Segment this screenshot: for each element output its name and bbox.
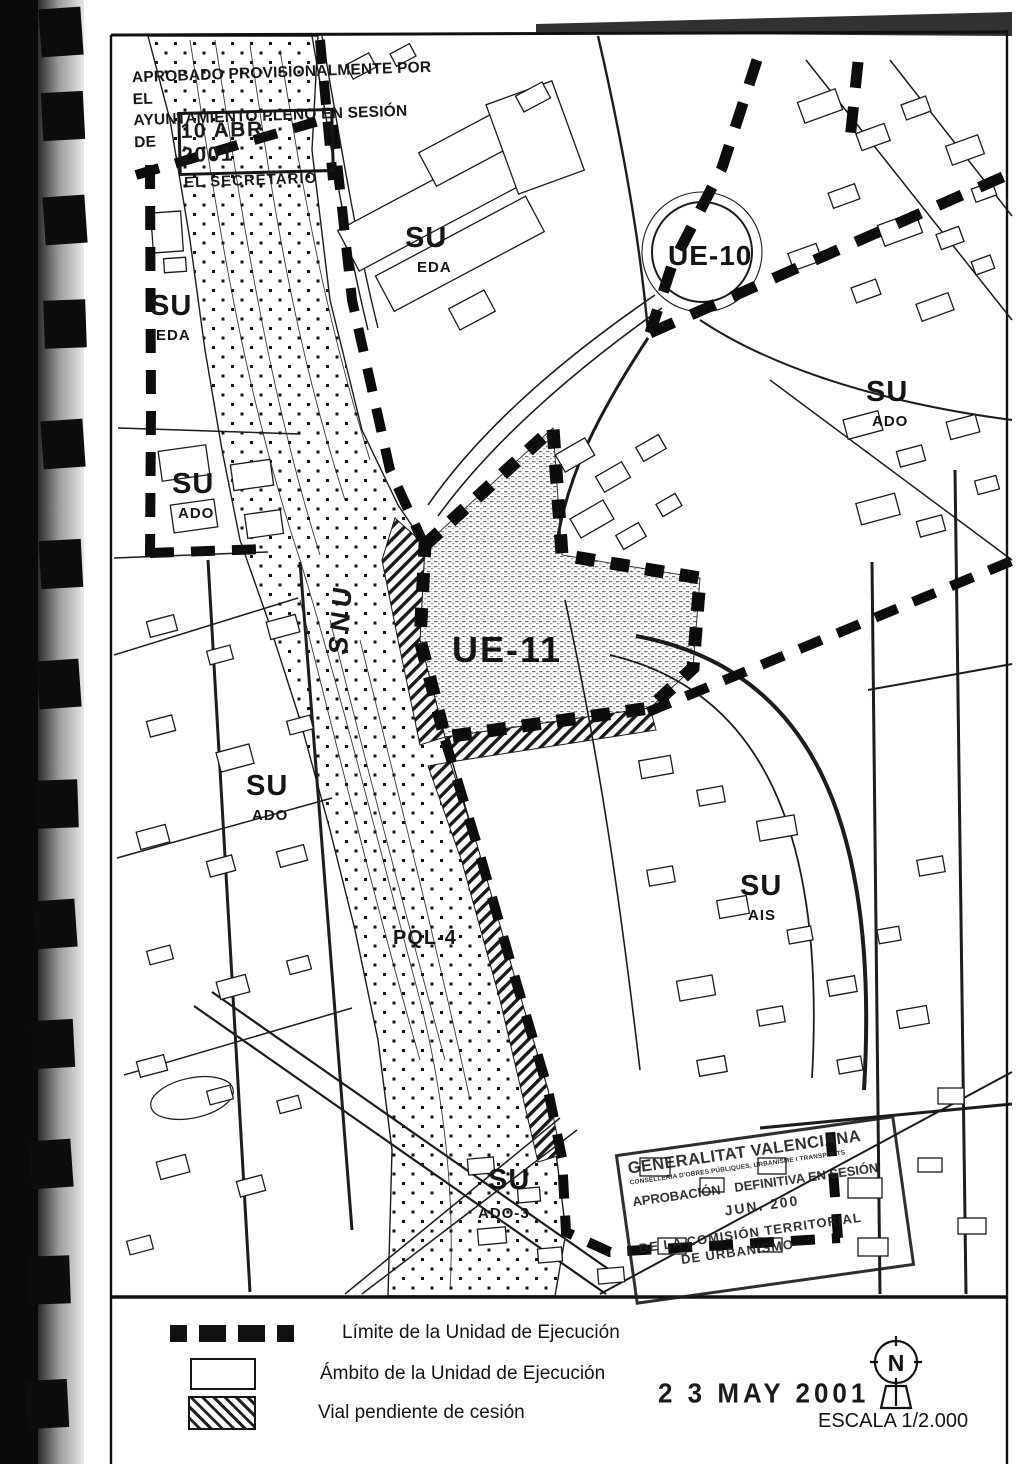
zone-su-ado3-sub: ADO-3 — [478, 1206, 530, 1221]
svg-text:N: N — [888, 1350, 905, 1376]
legend-label-limite: Límite de la Unidad de Ejecución — [342, 1322, 620, 1344]
legend-item-ambito: Ámbito de la Unidad de Ejecución — [190, 1358, 605, 1390]
legend-item-limite: Límite de la Unidad de Ejecución — [170, 1322, 620, 1344]
zone-su-eda-top: SU — [405, 224, 447, 253]
zone-su-eda-left: SU — [150, 292, 192, 321]
spiral-binding — [0, 0, 88, 1464]
legend-item-vial: Vial pendiente de cesión — [188, 1396, 525, 1430]
vial-symbol — [188, 1396, 256, 1430]
zone-su-ais: SU — [740, 872, 782, 901]
zone-su-ado-right-sub: ADO — [872, 414, 908, 429]
zone-su-eda-left-sub: EDA — [156, 328, 191, 343]
zone-su-ais-sub: AIS — [748, 908, 776, 923]
legend-label-vial: Vial pendiente de cesión — [318, 1402, 525, 1424]
zone-pql4: PQL-4 — [393, 928, 457, 948]
zone-su-ado-mid-sub: ADO — [252, 808, 288, 823]
generalitat-stamp-line1: APROBACIÓN — [632, 1182, 722, 1209]
approval-date-stamp: 10 ABR. 2001 — [177, 108, 335, 176]
north-arrow-icon: N — [870, 1336, 922, 1408]
ambito-symbol — [190, 1358, 256, 1390]
zone-su-eda-top-sub: EDA — [417, 260, 452, 275]
zone-su-ado-left: SU — [172, 470, 214, 499]
scale-label: ESCALA 1/2.000 — [818, 1410, 968, 1433]
approval-date-text: 10 ABR. 2001 — [180, 116, 331, 168]
zone-su-ado-left-sub: ADO — [178, 506, 214, 521]
zone-ue11: UE-11 — [452, 632, 562, 668]
legend-label-ambito: Ámbito de la Unidad de Ejecución — [320, 1363, 605, 1385]
zone-snu: SNU — [323, 580, 359, 657]
limite-symbol — [170, 1325, 294, 1342]
zone-su-ado3: SU — [488, 1166, 530, 1195]
zone-su-ado-mid: SU — [246, 772, 288, 801]
zone-su-ado-right: SU — [866, 378, 908, 407]
zone-ue10: UE-10 — [668, 242, 752, 270]
approval-date-may: 2 3 MAY 2001 — [658, 1377, 869, 1410]
